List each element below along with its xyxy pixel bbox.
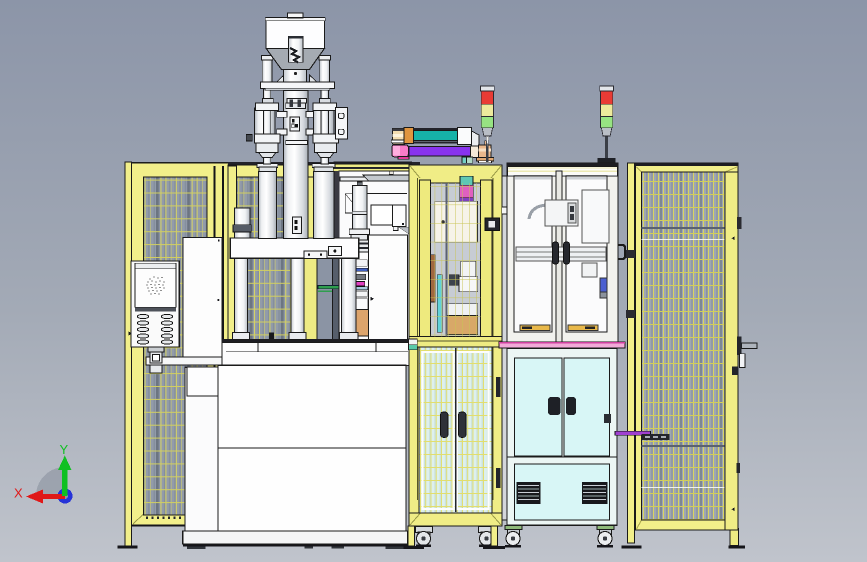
svg-text:X: X bbox=[14, 486, 23, 501]
svg-text:Y: Y bbox=[60, 442, 69, 457]
